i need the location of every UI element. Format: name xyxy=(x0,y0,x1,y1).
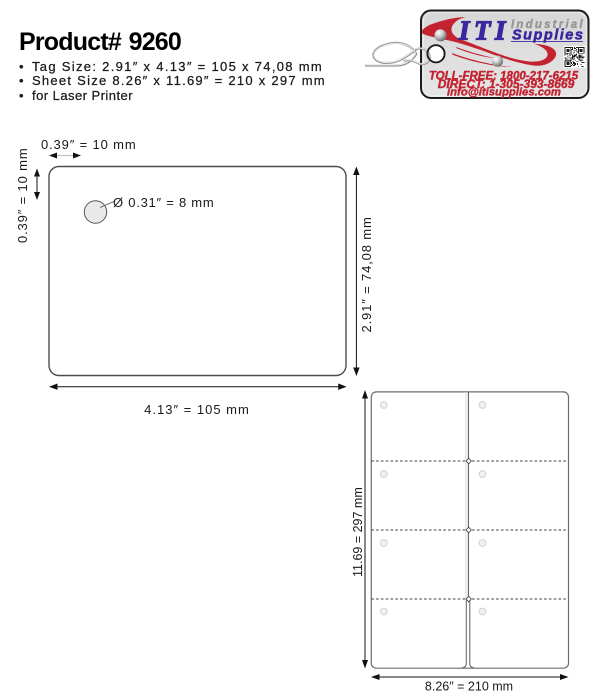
svg-text:Ø 0.31″ = 8 mm: Ø 0.31″ = 8 mm xyxy=(113,195,214,210)
svg-text:2.91″ = 74,08 mm: 2.91″ = 74,08 mm xyxy=(359,216,374,332)
svg-text:info@itisupplies.com: info@itisupplies.com xyxy=(447,87,561,99)
svg-text:0.39″ = 10 mm: 0.39″ = 10 mm xyxy=(15,148,30,244)
svg-text:4.13″ = 105 mm: 4.13″ = 105 mm xyxy=(144,402,250,417)
svg-text:0.39″ = 10 mm: 0.39″ = 10 mm xyxy=(41,137,137,152)
svg-text:8.26″ = 210 mm: 8.26″ = 210 mm xyxy=(425,680,513,694)
svg-text:ITI: ITI xyxy=(458,15,510,45)
svg-text:11.69 = 297 mm: 11.69 = 297 mm xyxy=(351,487,365,577)
